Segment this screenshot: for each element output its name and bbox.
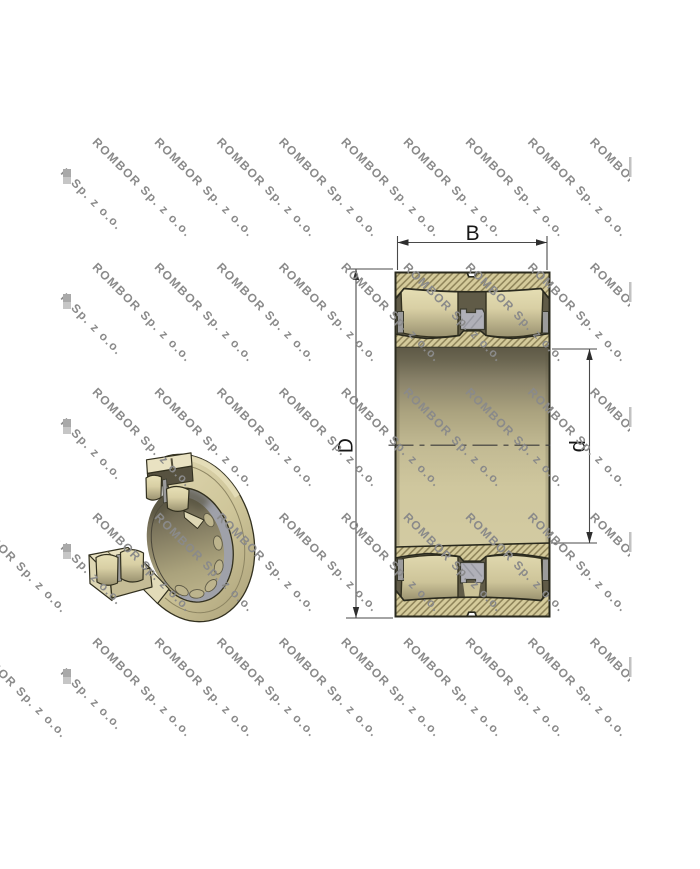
svg-text:ROMBOR Sp. z o.o.: ROMBOR Sp. z o.o. (0, 511, 70, 616)
svg-text:ROMBOR Sp. z o.o.: ROMBOR Sp. z o.o. (587, 385, 692, 490)
svg-text:B: B (466, 222, 480, 245)
svg-text:ROMBOR Sp. z o.o.: ROMBOR Sp. z o.o. (587, 635, 692, 740)
svg-text:ROMBOR Sp. z o.o.: ROMBOR Sp. z o.o. (0, 636, 70, 741)
svg-text:ROMBOR Sp. z o.o.: ROMBOR Sp. z o.o. (587, 135, 692, 240)
svg-text:ROMBOR Sp. z o.o.: ROMBOR Sp. z o.o. (587, 260, 692, 365)
svg-text:ROMBOR Sp. z o.o.: ROMBOR Sp. z o.o. (587, 510, 692, 615)
